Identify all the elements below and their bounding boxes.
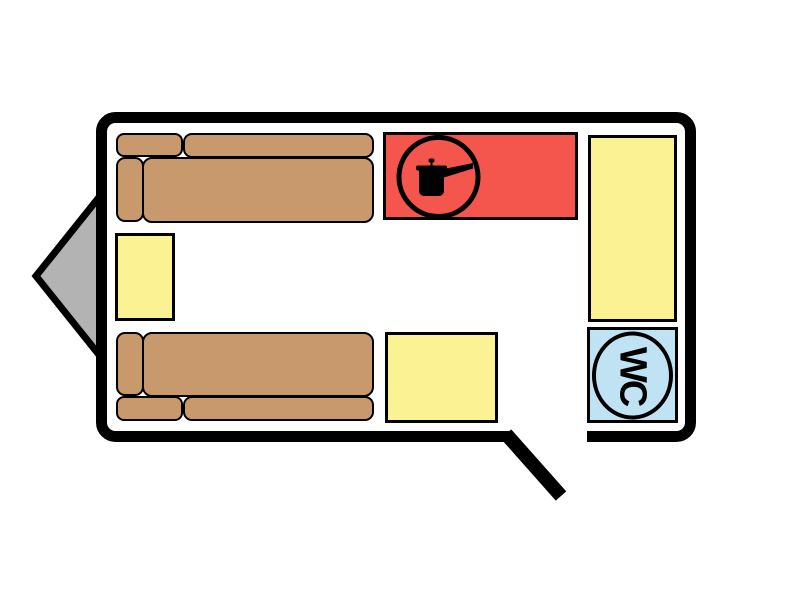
- bottom-sofa: [117, 333, 373, 420]
- sofa-seat-cushion: [143, 333, 373, 396]
- sofa-armrest-cushion: [117, 158, 143, 221]
- wc-label: WC: [612, 347, 654, 407]
- caravan-floor-plan: WC: [0, 0, 800, 600]
- top-sofa: [117, 134, 373, 222]
- sofa-seat-cushion: [143, 158, 373, 222]
- sofa-back-cushion-long: [184, 397, 373, 420]
- pot-body: [419, 170, 444, 196]
- wardrobe: [590, 137, 676, 321]
- sofa-back-cushion-small: [117, 397, 182, 420]
- dinette-table: [387, 334, 497, 422]
- sofa-back-cushion-long: [184, 134, 373, 157]
- sofa-back-cushion-small: [117, 134, 182, 156]
- floor-plan-canvas: WC: [0, 0, 800, 600]
- kitchen-unit: [385, 134, 577, 219]
- pot-lid: [416, 166, 447, 171]
- tow-hitch-triangle-icon: [36, 191, 104, 361]
- sofa-armrest-cushion: [117, 333, 143, 395]
- toilet-room: WC: [589, 329, 677, 422]
- side-table: [117, 235, 174, 320]
- pot-lid-knob-stem: [431, 162, 433, 166]
